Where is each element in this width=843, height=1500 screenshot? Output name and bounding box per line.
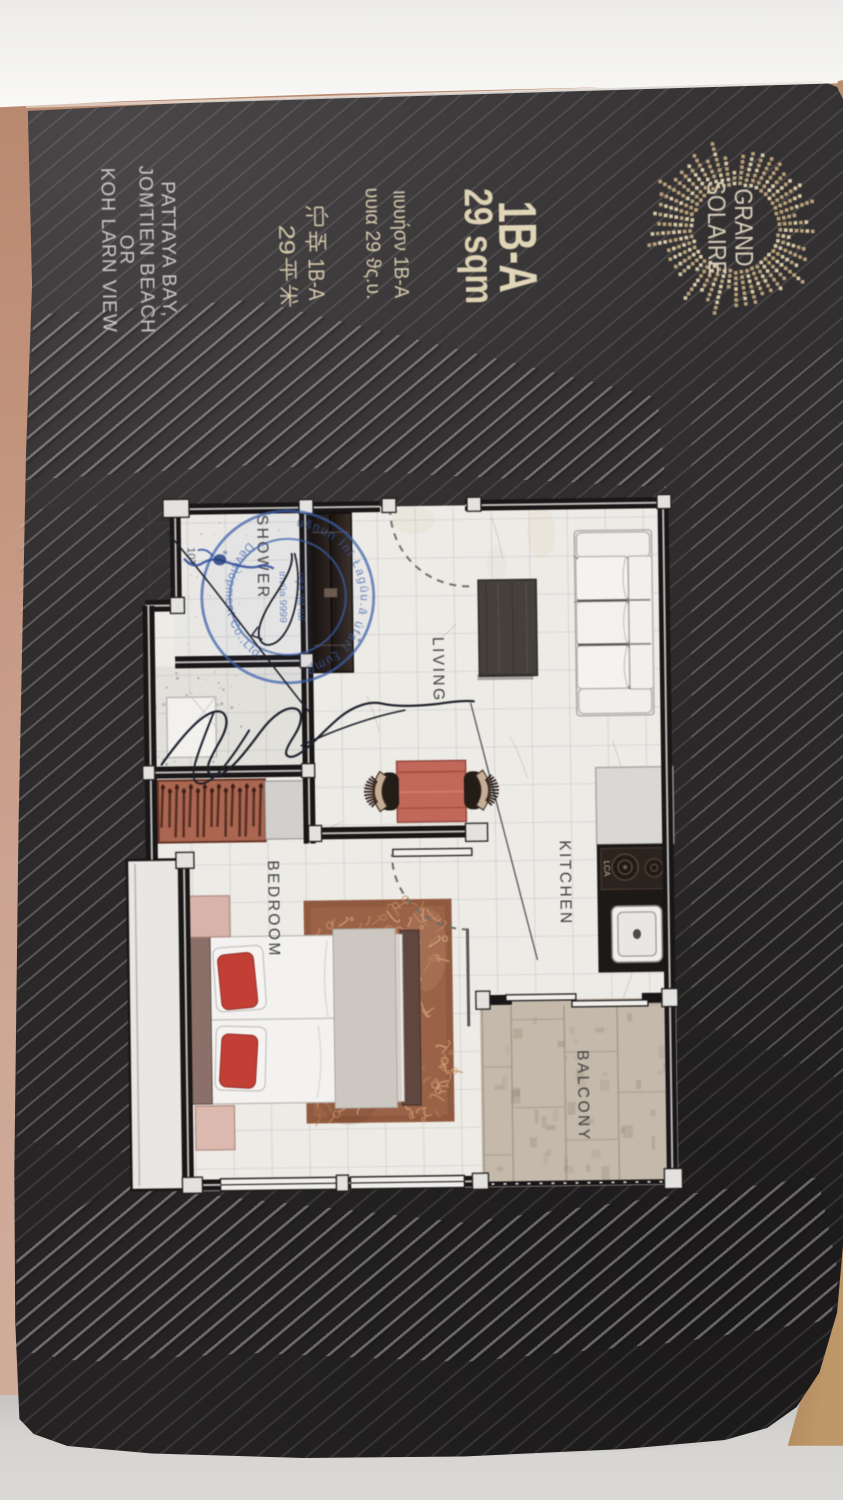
svg-text:LIVING: LIVING: [429, 637, 447, 703]
svg-text:29: 29: [274, 225, 299, 255]
svg-text:KITCHEN: KITCHEN: [556, 840, 574, 926]
svg-text:υυια 29 ϑς.υ.: υυια 29 ϑς.υ.: [361, 187, 385, 299]
svg-text:PATTAYA BAY,: PATTAYA BAY,: [156, 181, 179, 318]
svg-text:KOH LARN VIEW: KOH LARN VIEW: [96, 168, 119, 334]
svg-text:*: *: [349, 638, 365, 644]
svg-text:SOLAIRE: SOLAIRE: [701, 180, 730, 275]
svg-text:GRAND: GRAND: [729, 188, 758, 266]
svg-text:JOMTIEN BEACH: JOMTIEN BEACH: [134, 165, 157, 334]
svg-text:BALCONY: BALCONY: [574, 1050, 592, 1142]
svg-text:BEDROOM: BEDROOM: [264, 860, 282, 958]
svg-text:ιιυυήσν 1B-A: ιιυυήσν 1B-A: [389, 190, 413, 299]
svg-text:ınvūa 9999: ınvūa 9999: [276, 571, 289, 623]
svg-text:LCA: LCA: [602, 861, 611, 877]
svg-text:29 sqm: 29 sqm: [456, 188, 502, 305]
svg-text:1B-A: 1B-A: [304, 258, 330, 301]
